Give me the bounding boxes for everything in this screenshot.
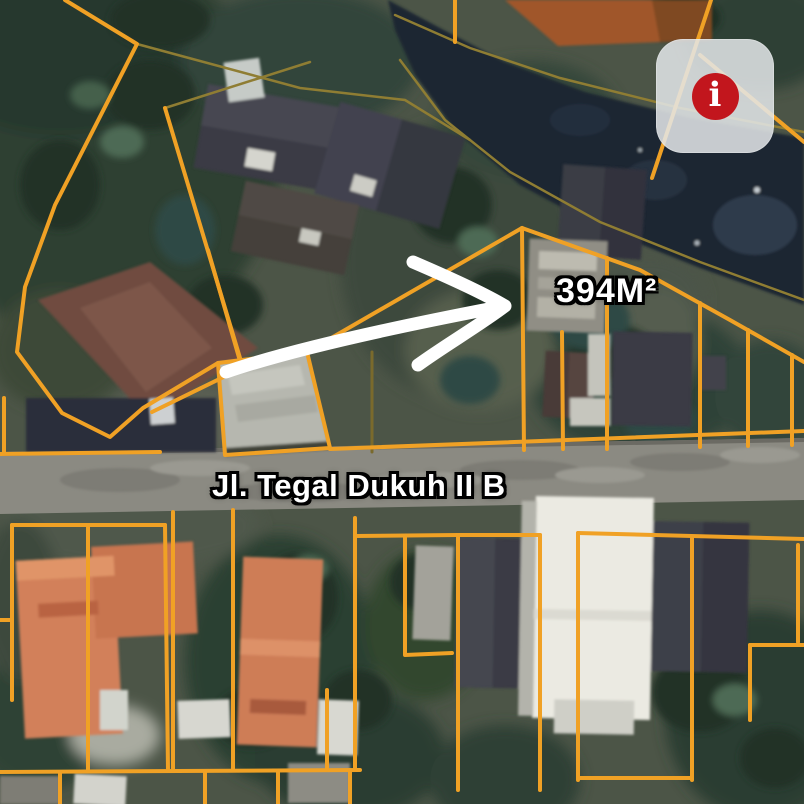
info-icon: i: [692, 73, 739, 120]
satellite-map-image: 394M² Jl. Tegal Dukuh II B i: [0, 0, 804, 804]
info-button[interactable]: i: [656, 39, 774, 153]
area-size-label: 394M²: [556, 272, 657, 311]
info-glyph: i: [709, 78, 722, 112]
road-name-label: Jl. Tegal Dukuh II B: [212, 468, 506, 504]
